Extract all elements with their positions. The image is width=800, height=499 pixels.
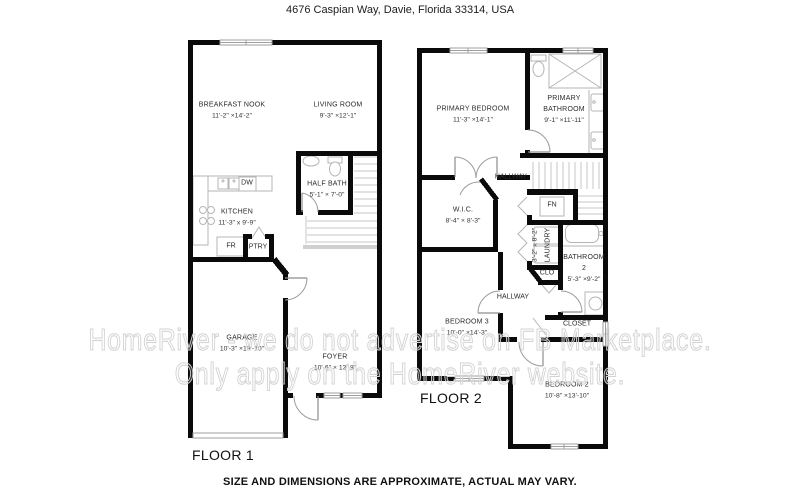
bifold-door-icon [518, 243, 527, 261]
floor1-stairs [303, 157, 382, 249]
label-fridge: FR [226, 242, 235, 253]
garage-door [193, 433, 283, 438]
bedroom2-door [519, 342, 543, 366]
toilet-bowl [330, 162, 341, 176]
toilet-tank [531, 55, 546, 61]
clo-door-icon [542, 285, 556, 293]
primary-bedroom-door [455, 157, 476, 178]
label-dishwasher: DW [241, 179, 253, 190]
stove-burner [200, 218, 207, 225]
primary-bedroom-door [476, 157, 497, 178]
stove-burner [208, 207, 215, 214]
stove-burner [208, 218, 215, 225]
room-label-foyer: FOYER 10'-6" × 13'-8" [314, 352, 356, 373]
front-door [294, 396, 318, 420]
bifold-door-icon [518, 225, 527, 243]
wic-door [460, 182, 480, 195]
closet-door-leaf [533, 318, 546, 335]
label-hallway-top: HALLWAY [495, 173, 527, 184]
toilet-bowl [533, 62, 544, 77]
stove-burner [200, 207, 207, 214]
room-label-half-bath: HALF BATH 5'-1" × 7'-0" [307, 179, 347, 200]
room-label-garage: GARAGE 10'-3" ×19'-10" [220, 333, 264, 354]
room-label-bathroom2: BATHROOM 2 5'-3" ×9'-2" [562, 253, 606, 285]
sink-icon [303, 156, 319, 166]
room-label-bedroom2: BEDROOM 2 10'-8" ×13'-10" [545, 380, 589, 401]
label-laundry: LAUNDRY [544, 228, 555, 263]
label-closet: CLOSET [563, 320, 591, 331]
label-clo: CLO [540, 269, 554, 280]
garage-entry-door [285, 278, 307, 300]
label-furnace: FN [547, 201, 556, 212]
room-label-bedroom3: BEDROOM 3 10'-0" ×14'-3" [445, 317, 489, 338]
room-label-kitchen: KITCHEN 11'-3" x 9'-9" [218, 207, 256, 228]
bifold-door-icon [518, 197, 527, 215]
floor2-label: FLOOR 2 [420, 390, 482, 406]
room-label-primary-bathroom: PRIMARY BATHROOM 9'-1" ×11'-11" [533, 94, 595, 126]
floorplan-drawing [0, 0, 800, 499]
room-label-living-room: LIVING ROOM 9'-3" ×12'-1" [314, 100, 363, 121]
label-hallway-bottom: HALLWAY [497, 293, 529, 304]
bathroom2-door [561, 291, 582, 312]
floor1-doors [285, 193, 318, 420]
stair-railing [303, 245, 382, 249]
label-laundry-dims: 3'-2" x 8'-2" [531, 228, 542, 262]
room-label-breakfast-nook: BREAKFAST NOOK 11'-2" ×14'-2" [199, 100, 265, 121]
floor1-label: FLOOR 1 [192, 447, 254, 463]
room-label-wic: W.I.C. 8'-4" × 8'-3" [446, 205, 481, 226]
sink-icon [589, 297, 602, 310]
floorplan-page: 4676 Caspian Way, Davie, Florida 33314, … [0, 0, 800, 499]
room-label-primary-bedroom: PRIMARY BEDROOM 11'-3" ×14'-1" [437, 104, 510, 125]
disclaimer-text: SIZE AND DIMENSIONS ARE APPROXIMATE, ACT… [0, 476, 800, 488]
label-pantry: PTRY [249, 243, 268, 254]
primary-bathroom-door [528, 130, 550, 152]
